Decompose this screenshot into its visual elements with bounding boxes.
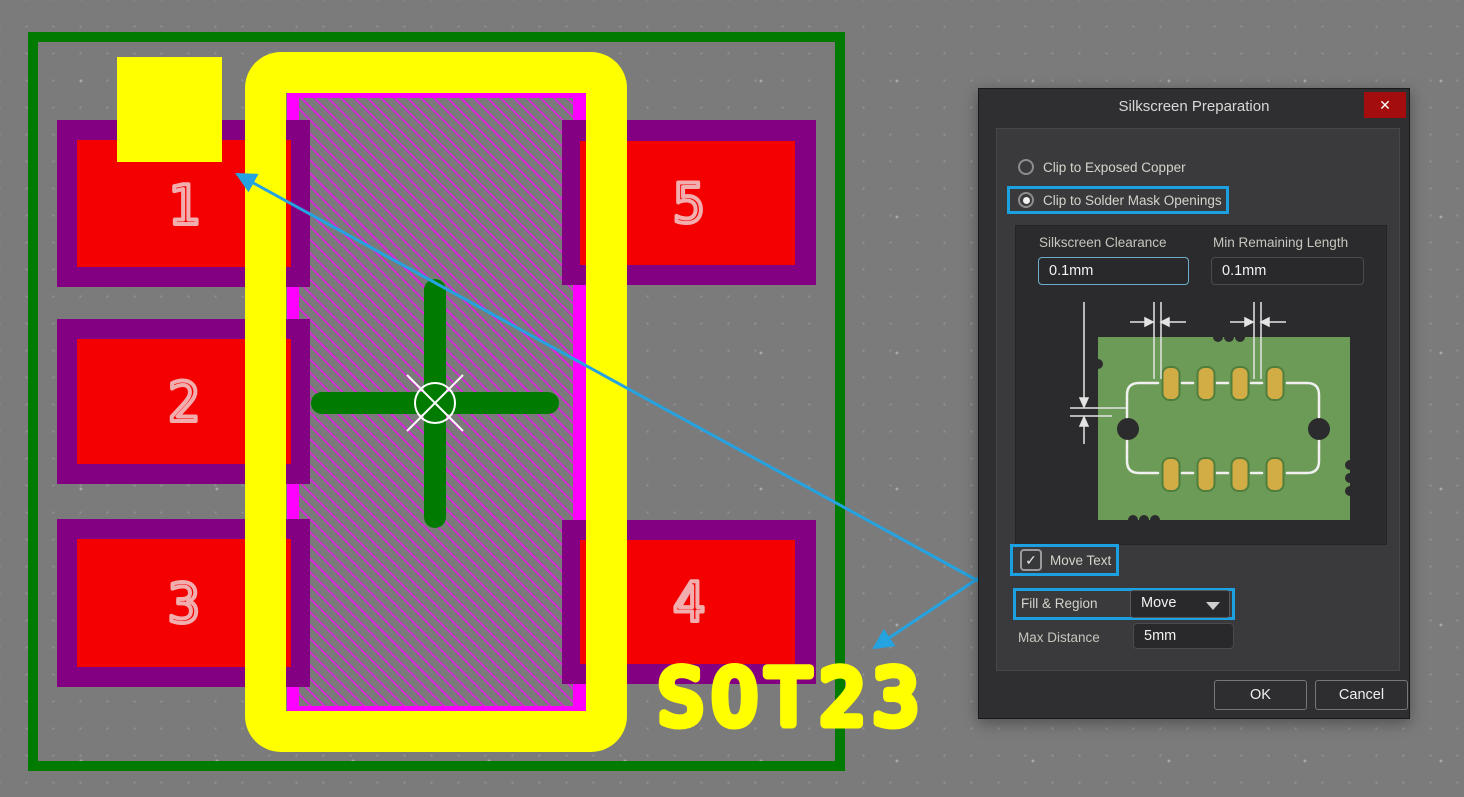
move-text-label: Move Text bbox=[1050, 553, 1111, 568]
ok-button[interactable]: OK bbox=[1214, 680, 1307, 710]
dropdown-value: Move bbox=[1141, 595, 1176, 611]
max-distance-label: Max Distance bbox=[1018, 630, 1100, 645]
dialog-content: Clip to Exposed Copper Clip to Solder Ma… bbox=[996, 128, 1400, 671]
radio-icon-selected[interactable] bbox=[1018, 192, 1034, 208]
dialog-title: Silkscreen Preparation bbox=[979, 98, 1409, 115]
radio-label: Clip to Solder Mask Openings bbox=[1043, 193, 1222, 208]
min-remaining-length-input[interactable]: 0.1mm bbox=[1211, 257, 1364, 285]
silkscreen-body-outline[interactable] bbox=[245, 52, 627, 752]
fill-region-row: Fill & Region Move bbox=[1013, 588, 1235, 620]
fill-region-dropdown[interactable]: Move bbox=[1130, 590, 1230, 618]
close-button[interactable]: ✕ bbox=[1364, 92, 1406, 118]
moved-silkscreen-fill[interactable] bbox=[117, 57, 222, 162]
fill-region-label: Fill & Region bbox=[1021, 596, 1098, 611]
chevron-down-icon bbox=[1206, 602, 1220, 610]
cancel-button[interactable]: Cancel bbox=[1315, 680, 1408, 710]
radio-icon[interactable] bbox=[1018, 159, 1034, 175]
min-remaining-length-label: Min Remaining Length bbox=[1213, 235, 1348, 250]
checkbox-checked-icon[interactable]: ✓ bbox=[1020, 549, 1042, 571]
radio-label: Clip to Exposed Copper bbox=[1043, 160, 1186, 175]
pcb-editor-canvas[interactable]: 1 2 3 4 5 SOT23 Silkscreen Preparation ✕… bbox=[0, 0, 1464, 797]
radio-clip-exposed-copper[interactable]: Clip to Exposed Copper bbox=[1018, 157, 1186, 177]
clearance-illustration bbox=[1016, 296, 1386, 541]
clearance-group-panel: Silkscreen Clearance Min Remaining Lengt… bbox=[1015, 225, 1387, 545]
silkscreen-preparation-dialog: Silkscreen Preparation ✕ Clip to Exposed… bbox=[978, 88, 1410, 719]
silkscreen-clearance-input[interactable]: 0.1mm bbox=[1038, 257, 1189, 285]
max-distance-input[interactable]: 5mm bbox=[1133, 623, 1234, 649]
radio-clip-solder-mask-openings[interactable]: Clip to Solder Mask Openings bbox=[1007, 186, 1229, 214]
silkscreen-clearance-label: Silkscreen Clearance bbox=[1039, 235, 1167, 250]
move-text-checkbox-row[interactable]: ✓ Move Text bbox=[1010, 544, 1119, 576]
close-icon: ✕ bbox=[1379, 97, 1391, 113]
